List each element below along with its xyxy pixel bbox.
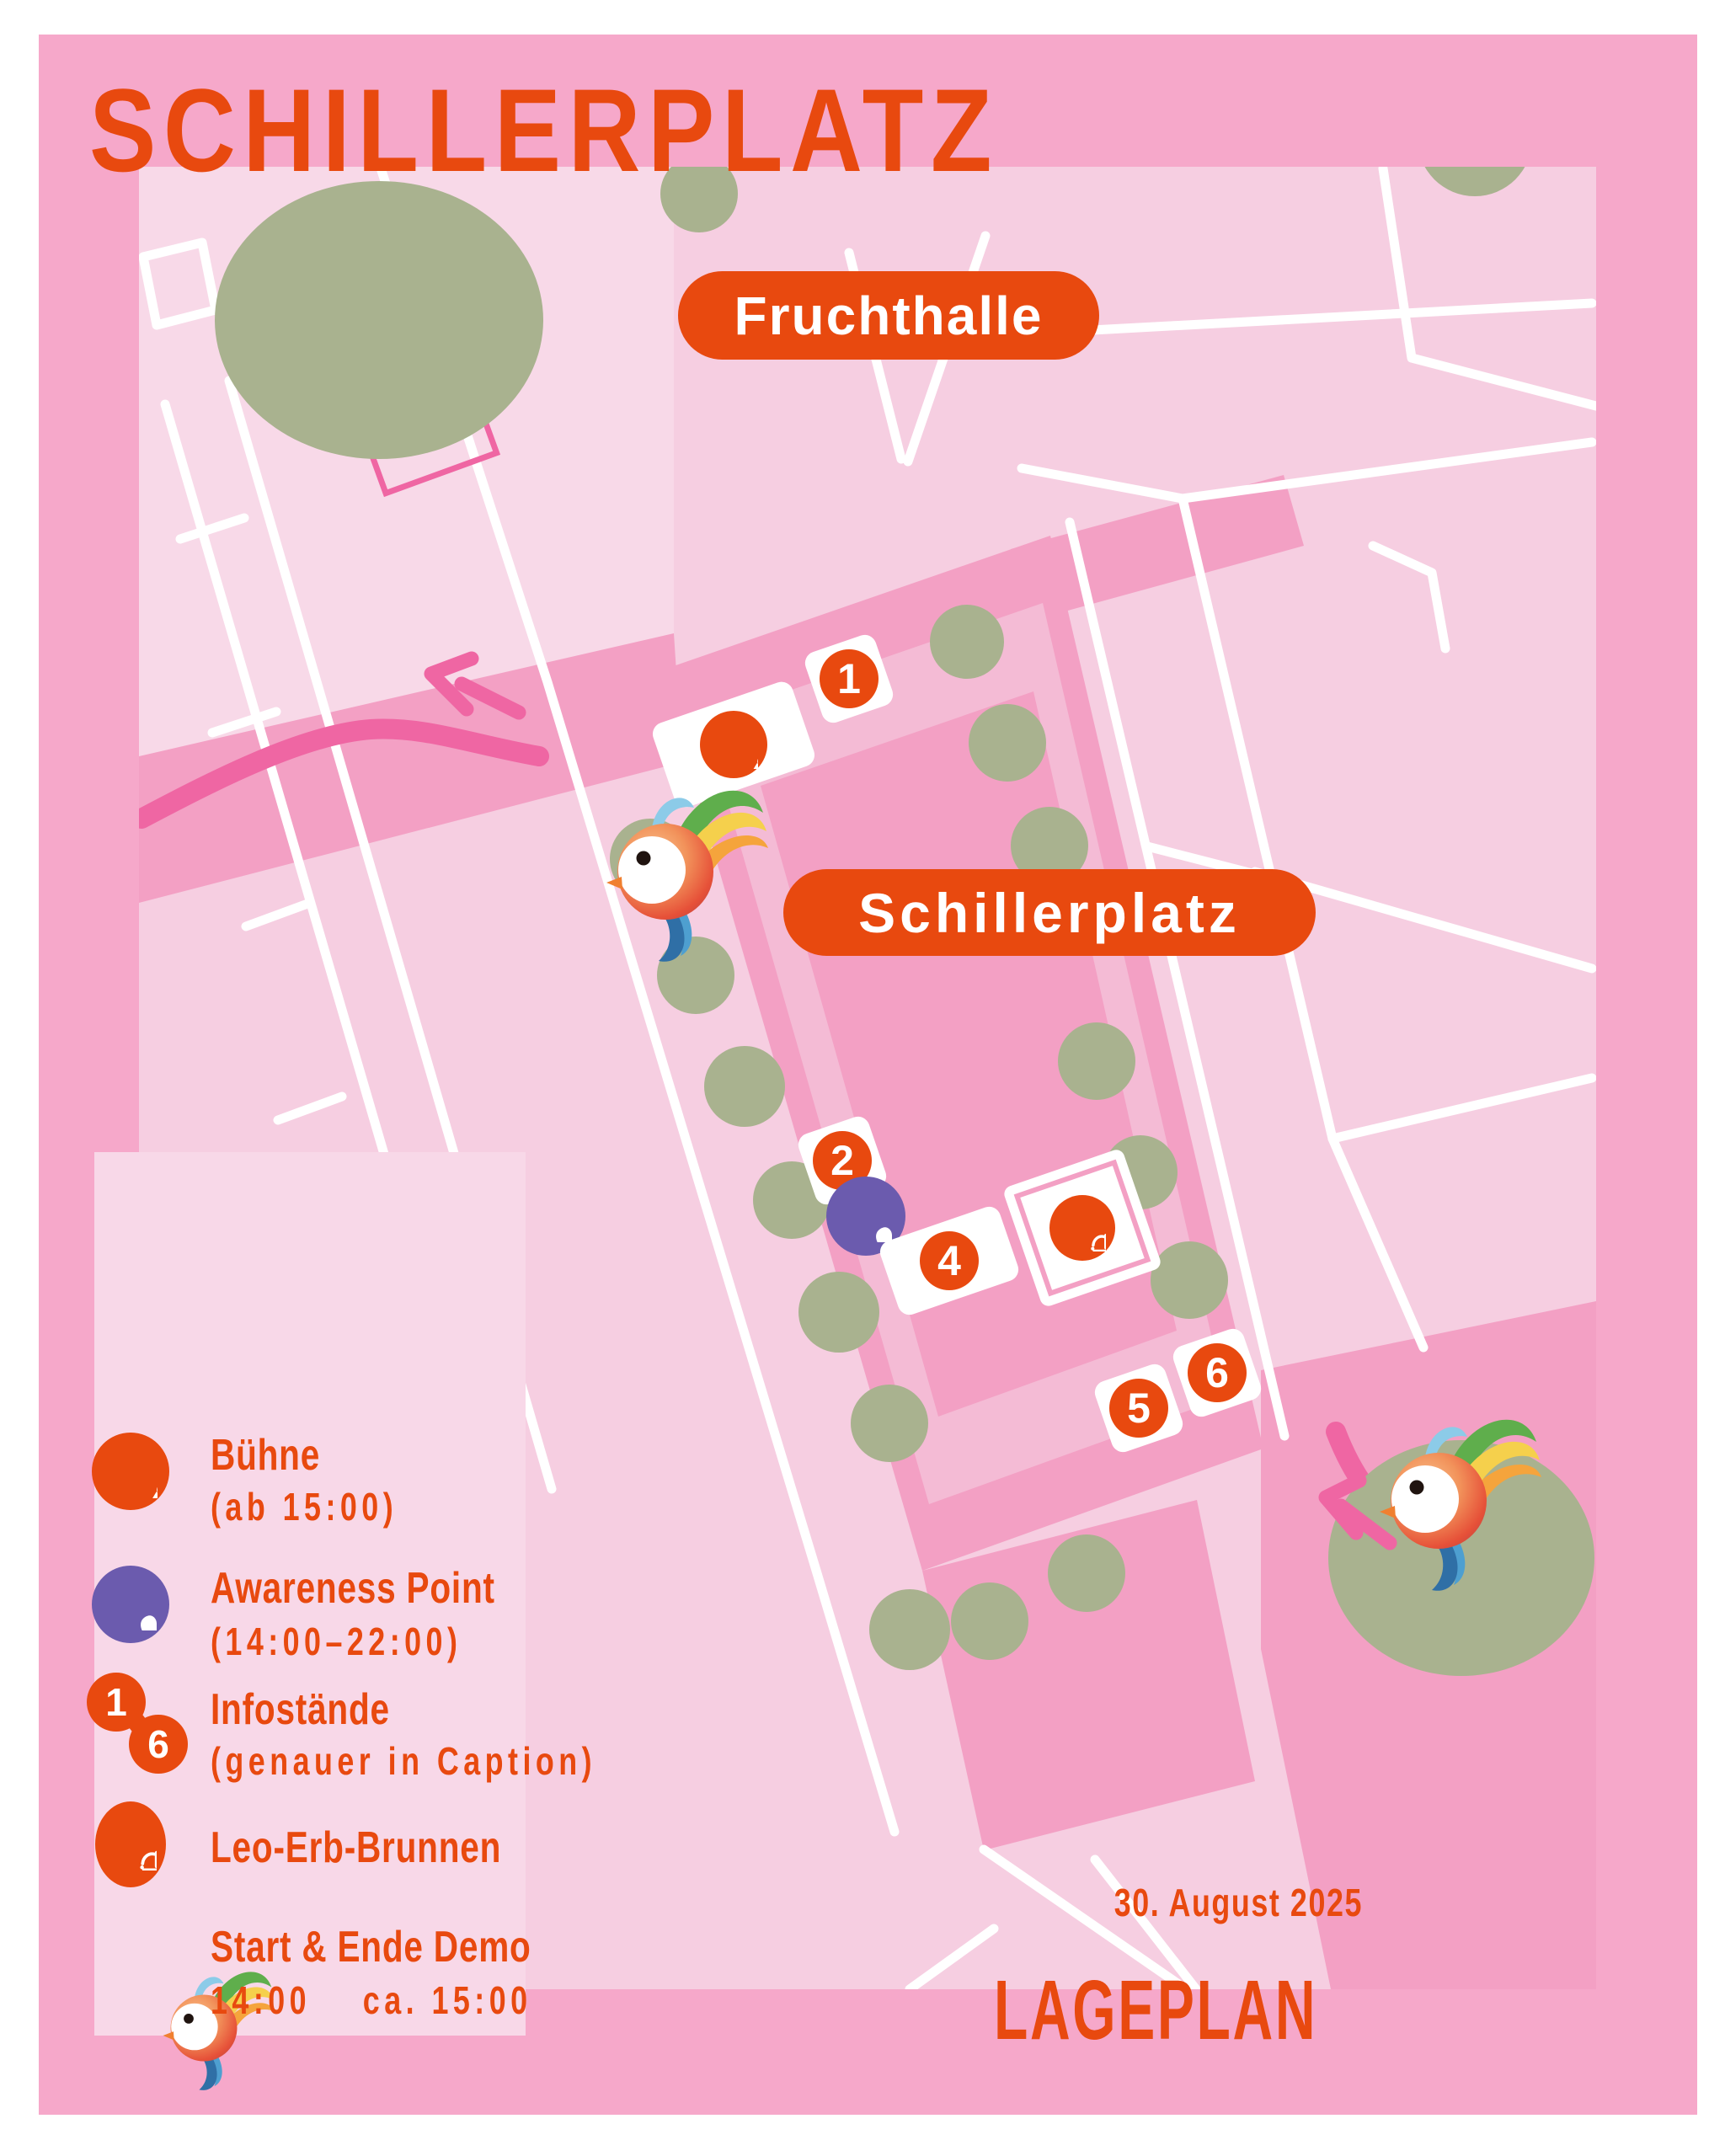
heart-icon [104, 1578, 157, 1630]
heart-icon [840, 1190, 892, 1242]
fountain-icon [1059, 1204, 1106, 1251]
range-from-number: 1 [105, 1679, 127, 1725]
plan-label: LAGEPLAN [994, 1962, 1317, 2059]
microphone-icon [709, 720, 758, 769]
infostand-2-number: 2 [830, 1136, 854, 1185]
fountain-marker [1049, 1195, 1115, 1261]
infostand-4-number: 4 [937, 1236, 961, 1285]
poster: Fruchthalle Schillerplatz 1 2 4 5 6 [0, 0, 1725, 2156]
legend-stage-icon [92, 1433, 169, 1510]
fountain-icon [104, 1818, 157, 1870]
demo-end-bird [1220, 1282, 1439, 1501]
legend-stage-title: Bühne [211, 1430, 320, 1481]
legend-infostands-subtitle: (genauer in Caption) [211, 1738, 596, 1784]
legend-demo-title: Start & Ende Demo [211, 1922, 531, 1972]
legend-range-to: 6 [129, 1715, 188, 1774]
infostand-4: 4 [920, 1231, 979, 1290]
microphone-icon [104, 1444, 158, 1498]
legend-demo-subtitle: 14:00 ca. 15:00 [211, 1977, 532, 2023]
legend-awareness-title: Awareness Point [211, 1563, 495, 1614]
legend-bird-icon [52, 1876, 204, 2028]
stage-marker [700, 711, 767, 778]
infostand-1: 1 [820, 649, 879, 708]
schillerplatz-text: Schillerplatz [858, 881, 1241, 945]
label-fruchthalle: Fruchthalle [678, 271, 1099, 360]
poster-title: SCHILLERPLATZ [89, 62, 999, 199]
infostand-5-number: 5 [1127, 1384, 1151, 1433]
legend-fountain-title: Leo-Erb-Brunnen [211, 1822, 501, 1873]
infostand-1-number: 1 [837, 654, 861, 703]
event-date: 30. August 2025 [1114, 1880, 1363, 1925]
legend-stage-subtitle: (ab 15:00) [211, 1484, 398, 1529]
fruchthalle-text: Fruchthalle [734, 285, 1044, 347]
label-schillerplatz: Schillerplatz [783, 869, 1316, 956]
demo-start-bird [446, 653, 665, 872]
legend-awareness-icon [92, 1566, 169, 1643]
infostand-5: 5 [1109, 1379, 1168, 1438]
legend-fountain-icon [95, 1801, 166, 1887]
legend-infostands-title: Infostände [211, 1684, 390, 1735]
legend-awareness-subtitle: (14:00–22:00) [211, 1619, 462, 1664]
range-to-number: 6 [147, 1721, 169, 1767]
